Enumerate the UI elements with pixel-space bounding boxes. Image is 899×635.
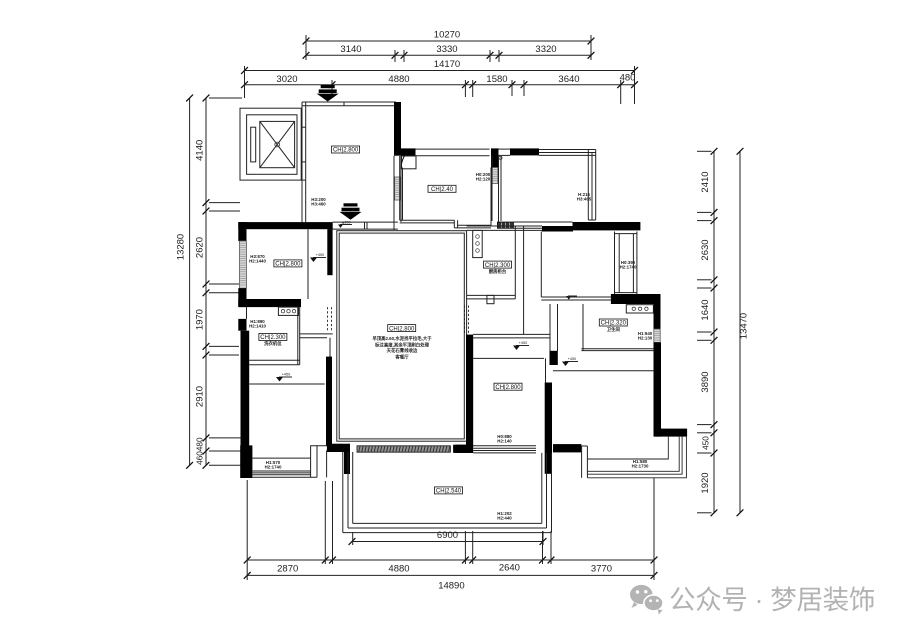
svg-text:CH|2.800: CH|2.800	[333, 148, 359, 154]
svg-text:2620: 2620	[195, 237, 206, 258]
svg-text:CH|2.40: CH|2.40	[431, 187, 454, 193]
svg-text:480: 480	[195, 437, 204, 451]
svg-text:CH|2.800: CH|2.800	[275, 262, 301, 268]
svg-text:1580: 1580	[486, 74, 507, 85]
svg-text:H2:1410: H2:1410	[249, 323, 266, 328]
svg-text:+450: +450	[282, 373, 291, 377]
svg-text:13470: 13470	[739, 313, 750, 339]
svg-text:2640: 2640	[499, 563, 520, 574]
svg-text:H2:440: H2:440	[497, 515, 512, 520]
svg-text:14890: 14890	[438, 581, 464, 592]
svg-text:公众号 · 梦居装饰: 公众号 · 梦居装饰	[669, 585, 875, 615]
svg-text:3320: 3320	[535, 44, 556, 55]
svg-text:3140: 3140	[340, 44, 361, 55]
svg-text:CH|2.300: CH|2.300	[485, 263, 511, 269]
svg-text:2870: 2870	[277, 564, 298, 575]
svg-text:CH|2.300: CH|2.300	[260, 335, 286, 341]
svg-text:CH|2.540: CH|2.540	[436, 489, 462, 495]
svg-text:H2:140: H2:140	[497, 438, 512, 443]
svg-text:洗衣机位: 洗衣机位	[264, 340, 282, 347]
svg-text:H3:465: H3:465	[577, 196, 592, 201]
svg-text:4140: 4140	[195, 140, 206, 161]
svg-text:2910: 2910	[195, 386, 206, 407]
svg-text:H2:1740: H2:1740	[620, 264, 637, 269]
svg-text:4880: 4880	[388, 564, 409, 575]
svg-text:+200: +200	[342, 220, 350, 224]
svg-text:天花石膏线收边: 天花石膏线收边	[387, 347, 418, 354]
svg-text:H2:130: H2:130	[638, 335, 653, 340]
svg-text:+450: +450	[568, 357, 577, 361]
svg-text:3890: 3890	[700, 371, 711, 392]
svg-text:14170: 14170	[434, 59, 460, 70]
svg-text:客餐厅: 客餐厅	[394, 353, 409, 360]
svg-text:2410: 2410	[700, 171, 711, 192]
svg-text:480: 480	[620, 73, 636, 84]
svg-text:3020: 3020	[276, 74, 297, 85]
svg-text:1640: 1640	[700, 299, 711, 320]
svg-text:+450: +450	[316, 253, 325, 257]
svg-text:1920: 1920	[700, 472, 711, 493]
svg-text:CH|2.800: CH|2.800	[495, 385, 521, 391]
svg-text:13280: 13280	[176, 234, 187, 260]
svg-text:卫生间: 卫生间	[607, 326, 621, 333]
svg-text:3640: 3640	[558, 74, 579, 85]
svg-text:10270: 10270	[434, 30, 460, 41]
svg-text:+450: +450	[519, 341, 528, 345]
svg-text:CH|2.320: CH|2.320	[601, 321, 627, 327]
svg-text:460: 460	[195, 451, 204, 465]
svg-text:H2:1440: H2:1440	[249, 258, 266, 263]
svg-text:450: 450	[702, 436, 711, 450]
svg-text:H2:120: H2:120	[476, 176, 491, 181]
svg-text:3330: 3330	[436, 44, 457, 55]
svg-text:H2:1740: H2:1740	[265, 464, 282, 469]
svg-text:厨房柜台: 厨房柜台	[489, 268, 507, 275]
svg-text:4880: 4880	[388, 74, 409, 85]
svg-text:6900: 6900	[437, 530, 458, 541]
svg-text:CH|2.800: CH|2.800	[389, 326, 415, 332]
svg-text:3770: 3770	[591, 564, 612, 575]
svg-text:2630: 2630	[700, 239, 711, 260]
svg-text:1970: 1970	[195, 309, 206, 330]
svg-text:H3:460: H3:460	[311, 201, 326, 206]
svg-text:H2:1730: H2:1730	[632, 463, 649, 468]
svg-text:吊顶高2.60,水泥找平拉毛,大于: 吊顶高2.60,水泥找平拉毛,大于	[372, 335, 432, 342]
